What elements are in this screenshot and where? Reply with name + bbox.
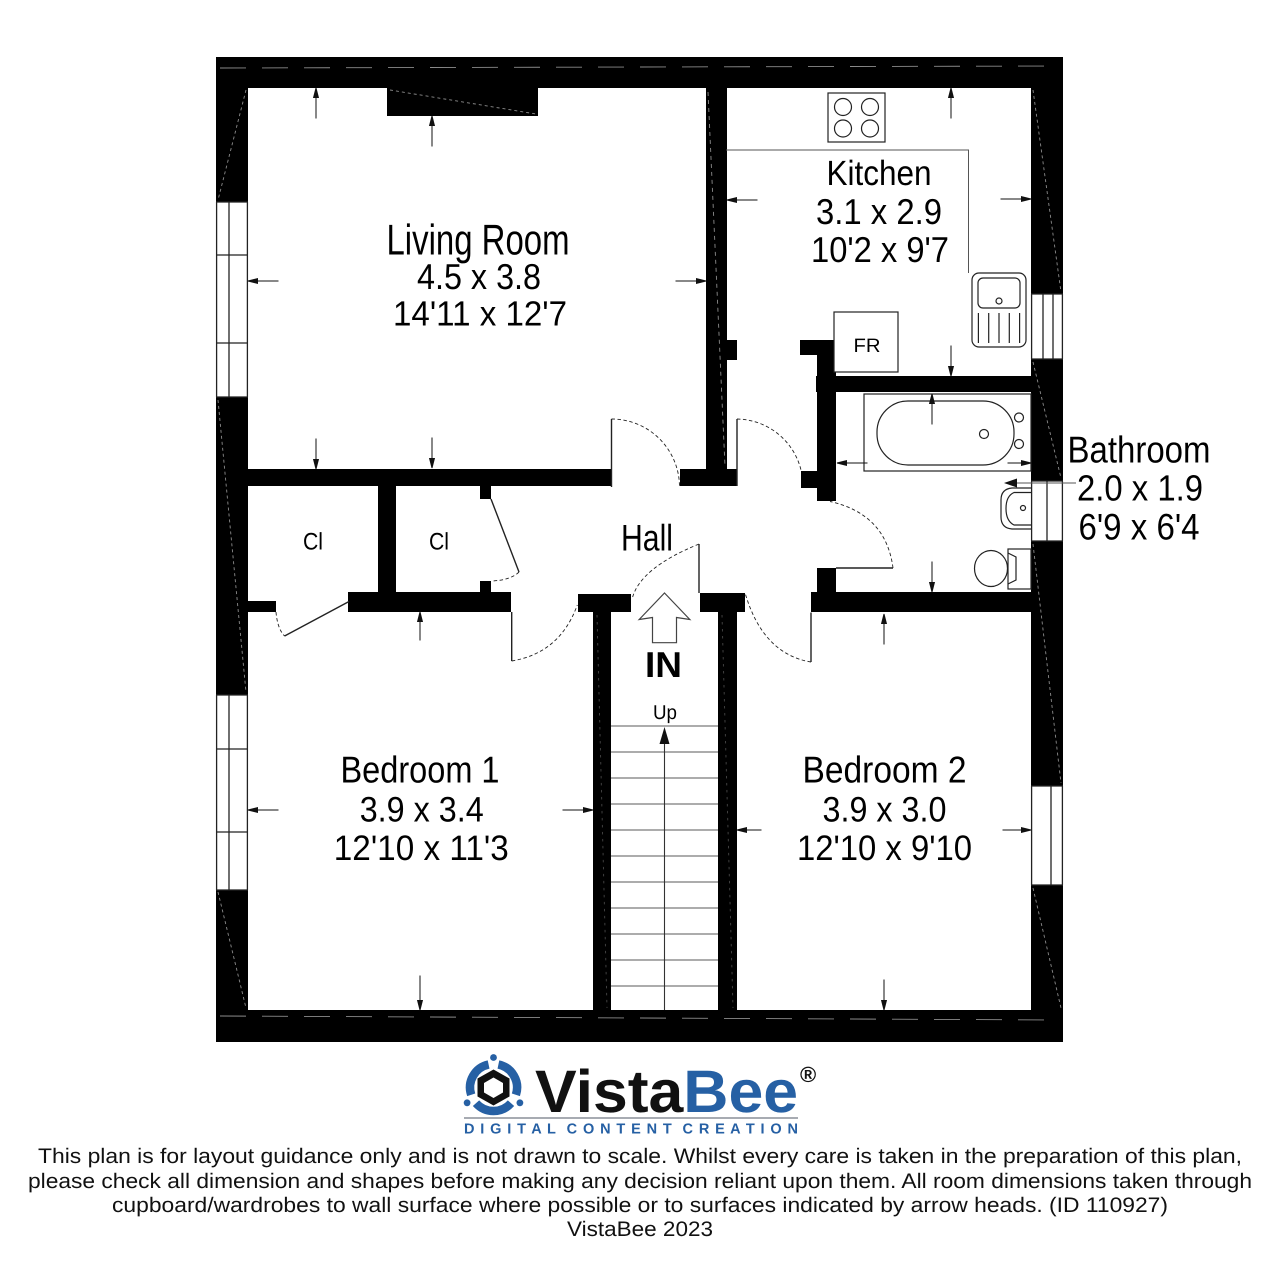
svg-text:14'11 x 12'7: 14'11 x 12'7 bbox=[393, 295, 567, 334]
svg-text:12'10 x 11'3: 12'10 x 11'3 bbox=[334, 828, 509, 868]
svg-text:4.5 x 3.8: 4.5 x 3.8 bbox=[417, 256, 541, 297]
svg-text:3.1 x 2.9: 3.1 x 2.9 bbox=[816, 191, 942, 232]
svg-text:IN: IN bbox=[645, 644, 682, 685]
svg-text:Bathroom: Bathroom bbox=[1068, 429, 1211, 471]
svg-text:10'2 x 9'7: 10'2 x 9'7 bbox=[811, 229, 949, 270]
svg-text:FR: FR bbox=[854, 335, 881, 357]
svg-text:6'9 x 6'4: 6'9 x 6'4 bbox=[1079, 507, 1200, 548]
svg-text:®: ® bbox=[800, 1062, 816, 1087]
svg-text:Up: Up bbox=[653, 702, 677, 724]
svg-text:12'10 x 9'10: 12'10 x 9'10 bbox=[797, 828, 972, 868]
svg-text:Hall: Hall bbox=[621, 518, 673, 559]
svg-text:please check all dimension and: please check all dimension and shapes be… bbox=[28, 1170, 1252, 1193]
svg-text:D I G I T A L C O N T E N T: D I G I T A L C O N T E N T C R E A T I … bbox=[464, 1122, 798, 1138]
svg-text:This plan is for layout guidan: This plan is for layout guidance only an… bbox=[38, 1145, 1242, 1168]
svg-text:3.9 x 3.4: 3.9 x 3.4 bbox=[360, 789, 484, 829]
svg-text:2.0 x 1.9: 2.0 x 1.9 bbox=[1077, 468, 1203, 509]
svg-text:Bedroom 1: Bedroom 1 bbox=[341, 749, 500, 791]
svg-text:VistaBee: VistaBee bbox=[535, 1058, 798, 1125]
svg-text:Bedroom 2: Bedroom 2 bbox=[803, 749, 967, 791]
svg-text:Cl: Cl bbox=[303, 529, 323, 556]
svg-text:Cl: Cl bbox=[429, 529, 449, 556]
svg-text:Kitchen: Kitchen bbox=[827, 154, 932, 193]
svg-text:VistaBee 2023: VistaBee 2023 bbox=[567, 1218, 713, 1241]
svg-text:3.9 x 3.0: 3.9 x 3.0 bbox=[823, 789, 947, 829]
svg-text:cupboard/wardrobes to wall sur: cupboard/wardrobes to wall surface where… bbox=[112, 1194, 1168, 1217]
